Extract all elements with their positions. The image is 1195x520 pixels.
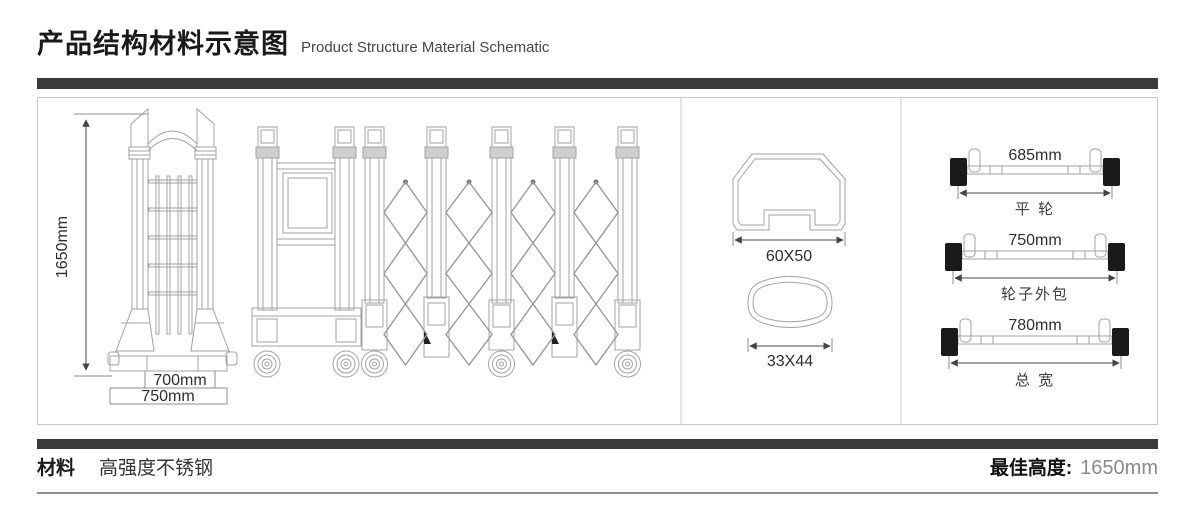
scissor-lattice xyxy=(384,180,618,366)
axle-wheel-wrap-label: 轮子外包 xyxy=(1001,286,1069,303)
wheel-block xyxy=(945,243,962,271)
hanging-post xyxy=(552,127,577,357)
wheel xyxy=(333,351,359,377)
right-finial xyxy=(197,109,214,147)
axle-wheel-wrap: 750mm 轮子外包 xyxy=(945,232,1125,303)
top-divider-bar xyxy=(37,78,1158,89)
wheel-block xyxy=(1108,243,1125,271)
wheel xyxy=(254,351,280,377)
wheeled-post xyxy=(362,127,388,377)
axle-total-width-dimension: 780mm xyxy=(1008,317,1061,334)
base-beam xyxy=(110,356,227,371)
page-subtitle: Product Structure Material Schematic xyxy=(301,39,549,60)
axle-total-width-label: 总 宽 xyxy=(1015,372,1055,389)
bottom-divider-bar xyxy=(37,439,1158,449)
best-height: 最佳高度: 1650mm xyxy=(990,453,1158,480)
best-height-label: 最佳高度: xyxy=(990,453,1072,480)
product-schematic-page: 产品结构材料示意图 Product Structure Material Sch… xyxy=(0,0,1195,520)
material-value: 高强度不锈钢 xyxy=(99,453,213,480)
gate-height-dimension: 1650mm xyxy=(54,216,71,278)
schematic-panel: 1650mm xyxy=(37,97,1158,425)
footer-underline xyxy=(37,492,1158,494)
axle-wheel-wrap-dimension: 750mm xyxy=(1008,232,1061,249)
wheel-block xyxy=(1103,158,1120,186)
header: 产品结构材料示意图 Product Structure Material Sch… xyxy=(37,28,549,60)
axle-flat-wheel: 685mm 平 轮 xyxy=(950,147,1120,218)
axle-flat-wheel-dimension: 685mm xyxy=(1008,147,1061,164)
retractable-gate-view xyxy=(252,127,641,377)
gate-post-front-view: 1650mm xyxy=(54,109,237,405)
material-label: 材料 xyxy=(37,453,75,480)
axle-total-width: 780mm 总 宽 xyxy=(941,317,1129,389)
axle-flat-wheel-label: 平 轮 xyxy=(1015,201,1055,218)
profile-60x50: 60X50 xyxy=(733,154,845,265)
wheel-block xyxy=(1112,328,1129,356)
lead-unit xyxy=(252,127,361,377)
wheel-block xyxy=(950,158,967,186)
profile-small-dimension: 33X44 xyxy=(767,353,813,370)
wheeled-post xyxy=(489,127,515,377)
gate-inner-width-dimension: 700mm xyxy=(153,372,206,389)
best-height-value: 1650mm xyxy=(1080,457,1158,480)
control-panel-box xyxy=(283,173,332,233)
profile-33x44: 33X44 xyxy=(748,277,832,371)
gate-outer-width-dimension: 750mm xyxy=(141,388,194,405)
wheel-block xyxy=(941,328,958,356)
schematic-drawing: 1650mm xyxy=(38,98,1157,424)
hanging-post xyxy=(424,127,449,357)
left-finial xyxy=(131,109,148,147)
page-title: 产品结构材料示意图 xyxy=(37,28,289,60)
footer: 材料 高强度不锈钢 最佳高度: 1650mm xyxy=(37,453,1158,480)
wheeled-post xyxy=(615,127,641,377)
profile-large-dimension: 60X50 xyxy=(766,248,812,265)
